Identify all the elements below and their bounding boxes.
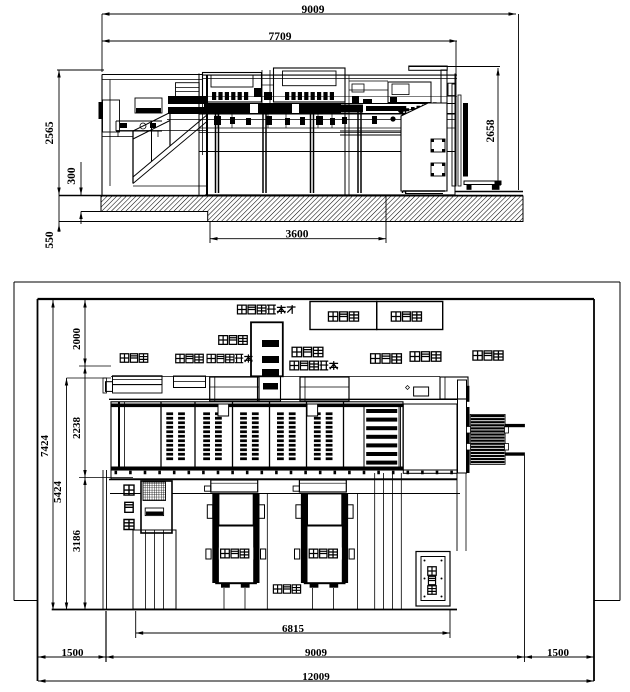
svg-text:7709: 7709 (269, 31, 292, 43)
svg-text:5424: 5424 (52, 481, 64, 504)
svg-text:2000: 2000 (71, 328, 83, 351)
svg-text:3186: 3186 (71, 530, 83, 553)
svg-text:300: 300 (66, 167, 78, 185)
svg-text:1500: 1500 (547, 647, 570, 659)
svg-text:550: 550 (44, 231, 56, 249)
svg-text:2658: 2658 (485, 119, 497, 142)
svg-text:7424: 7424 (39, 435, 51, 458)
svg-text:2238: 2238 (71, 417, 83, 440)
svg-text:9009: 9009 (305, 647, 328, 659)
svg-text:1500: 1500 (62, 647, 85, 659)
svg-text:6815: 6815 (282, 623, 305, 635)
svg-text:9009: 9009 (302, 4, 325, 16)
svg-text:3600: 3600 (286, 229, 309, 241)
svg-text:12009: 12009 (302, 671, 330, 683)
svg-text:2565: 2565 (44, 121, 56, 144)
